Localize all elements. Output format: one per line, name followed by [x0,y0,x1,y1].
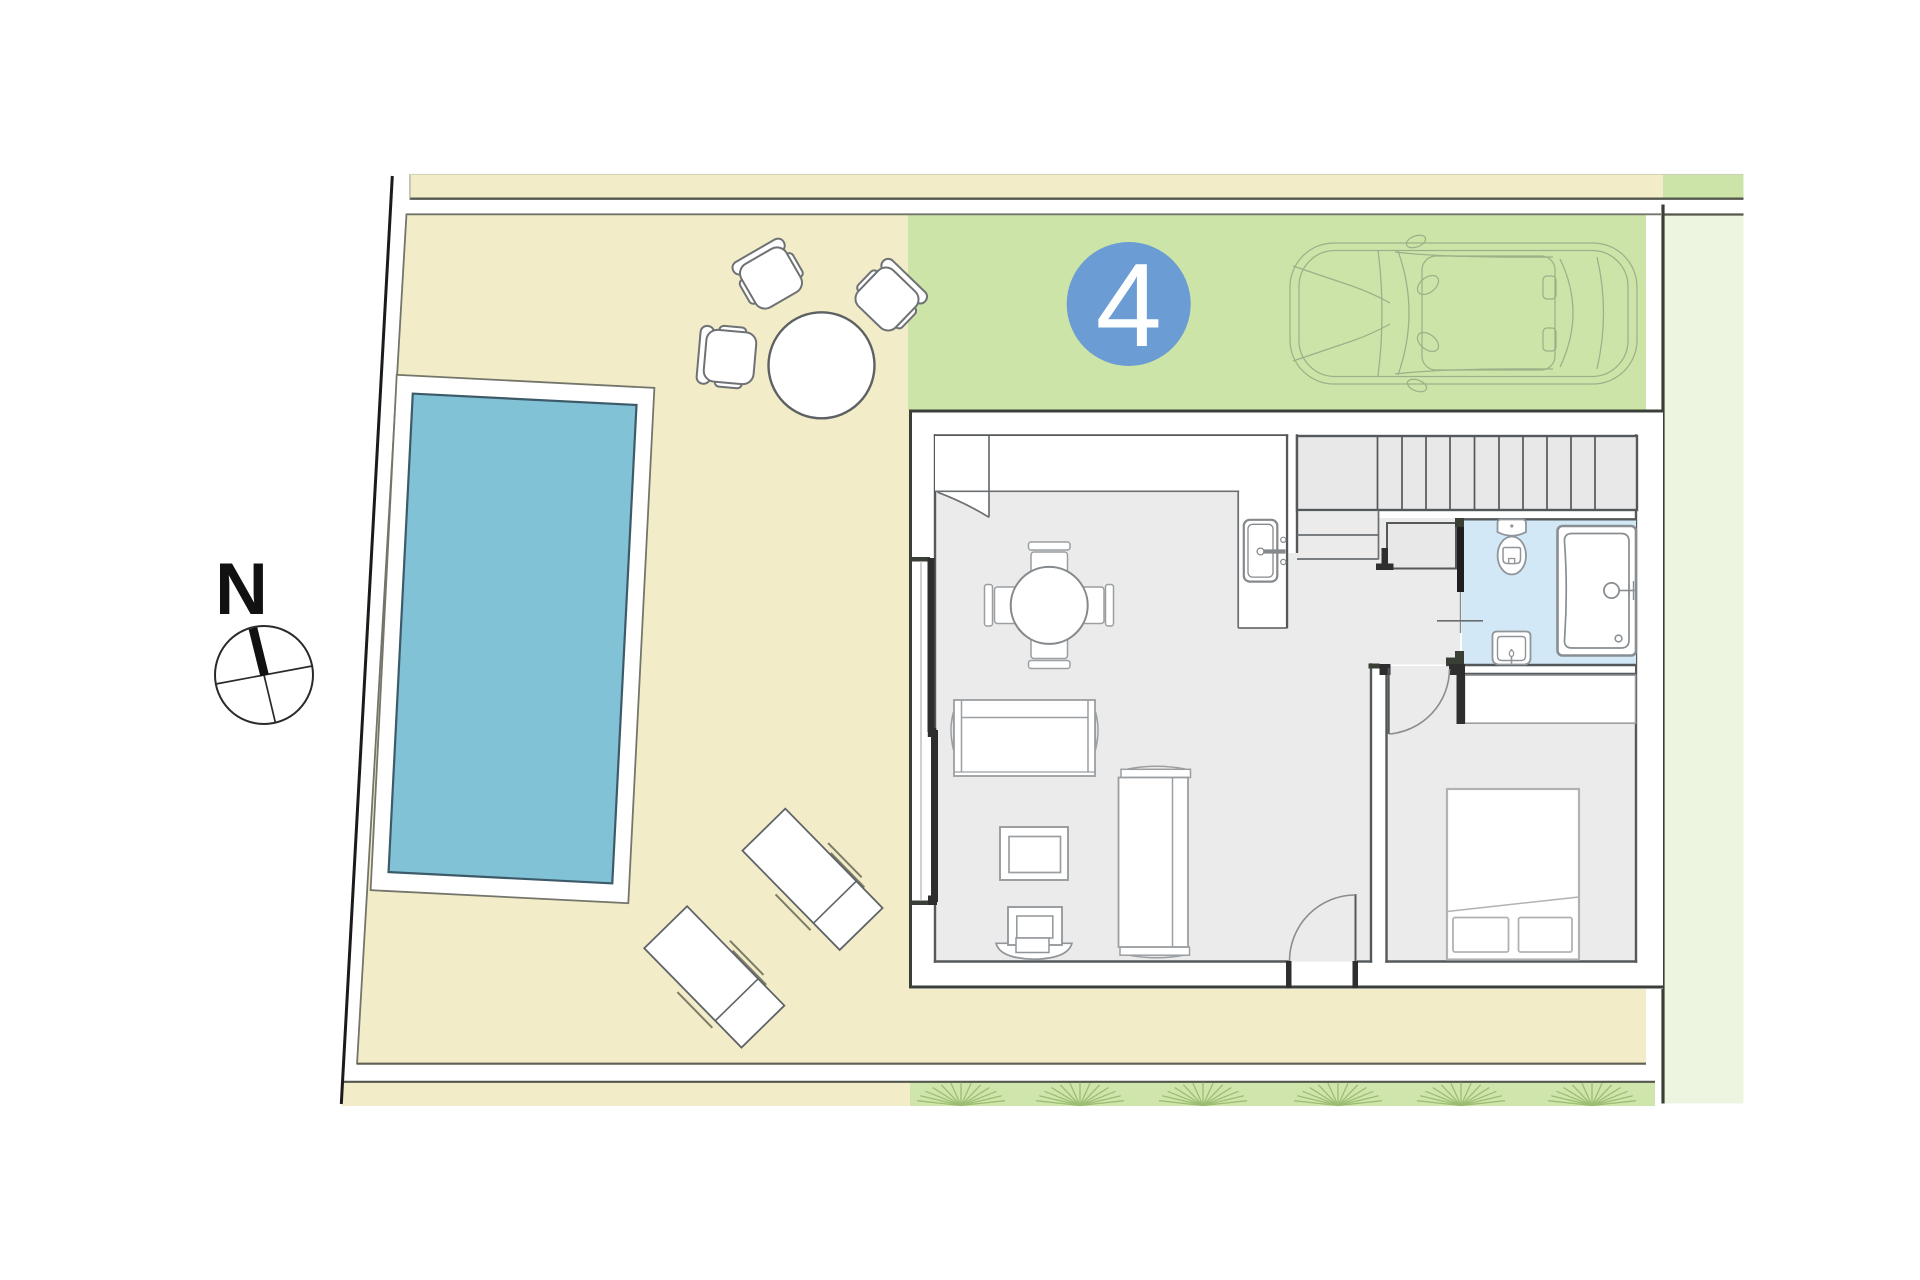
svg-text:4: 4 [1096,239,1162,372]
svg-text:N: N [215,549,268,630]
